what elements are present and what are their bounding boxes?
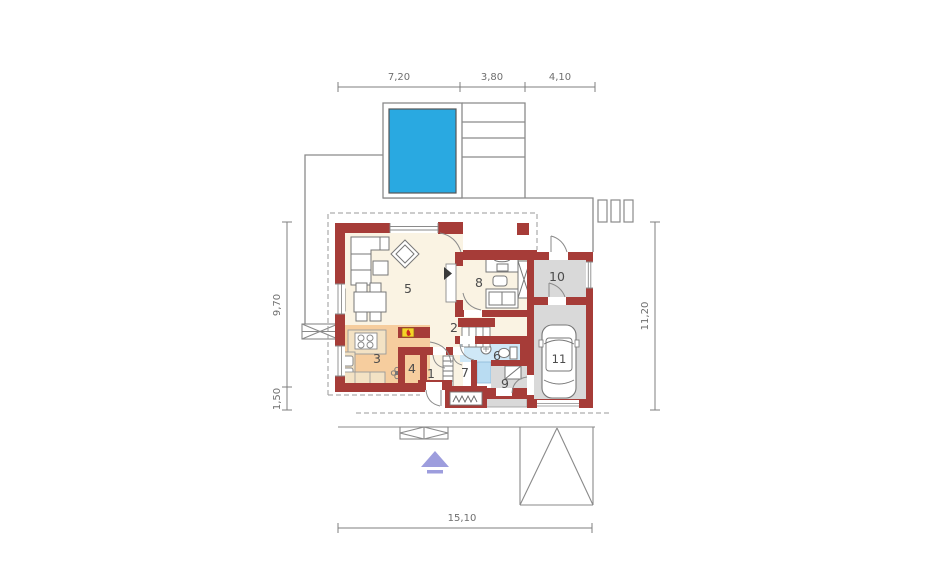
radiator-icon xyxy=(450,392,482,405)
left-side-steps xyxy=(302,324,338,339)
dimension-line-top xyxy=(338,82,595,92)
window-living-left xyxy=(335,284,345,314)
room-label-11: 11 xyxy=(552,352,567,366)
entrance-arrow-icon xyxy=(421,451,449,474)
window-kitchen-left xyxy=(335,346,345,376)
swimming-pool xyxy=(389,109,456,193)
garage-door xyxy=(537,400,579,408)
dim-bottom-1: 15,10 xyxy=(448,513,477,524)
floor-plan-drawing: 1 2 3 4 5 6 7 8 9 10 11 7,20 3,80 4,10 9… xyxy=(0,0,940,587)
dimension-line-right xyxy=(650,222,660,410)
room-label-10: 10 xyxy=(549,269,565,284)
door-gap-room10-entry xyxy=(549,252,568,260)
dim-left-1: 9,70 xyxy=(272,294,283,316)
dim-top-2: 3,80 xyxy=(481,72,503,83)
dim-right-1: 11,20 xyxy=(640,302,651,331)
floor-plan-page: 1 2 3 4 5 6 7 8 9 10 11 7,20 3,80 4,10 9… xyxy=(0,0,940,587)
fireplace-icon xyxy=(402,328,414,337)
driveway xyxy=(520,427,593,505)
room-label-8: 8 xyxy=(475,275,483,290)
entrance-steps xyxy=(400,427,448,439)
room-label-4: 4 xyxy=(408,361,416,376)
door-gap-bathroom xyxy=(460,336,475,344)
window-room10-right xyxy=(586,262,593,288)
south-site-lines xyxy=(338,427,595,505)
room-label-9: 9 xyxy=(501,376,509,391)
dim-top-3: 4,10 xyxy=(549,72,571,83)
room-label-7: 7 xyxy=(461,365,469,380)
trash-bins xyxy=(598,200,633,222)
room-label-3: 3 xyxy=(373,351,381,366)
door-gap-room7 xyxy=(453,347,464,355)
room-label-6: 6 xyxy=(493,348,501,363)
door-gap-10-11 xyxy=(548,297,566,305)
door-arc-room10-entry xyxy=(551,236,567,252)
room-label-5: 5 xyxy=(404,281,412,296)
door-gap-9-11 xyxy=(527,375,534,395)
dimension-line-left xyxy=(282,222,292,410)
chimney xyxy=(517,223,529,235)
door-arc-main-entrance xyxy=(426,390,441,406)
window-living-top xyxy=(390,223,438,233)
room-label-2: 2 xyxy=(450,320,458,335)
door-gap-room8 xyxy=(464,310,482,317)
dim-left-2: 1,50 xyxy=(272,388,283,410)
room-label-1: 1 xyxy=(427,366,435,381)
pocket-sliding-door xyxy=(444,264,456,302)
dimension-line-bottom xyxy=(338,523,592,533)
dim-top-1: 7,20 xyxy=(388,72,410,83)
door-gap-main-entrance xyxy=(426,382,442,390)
